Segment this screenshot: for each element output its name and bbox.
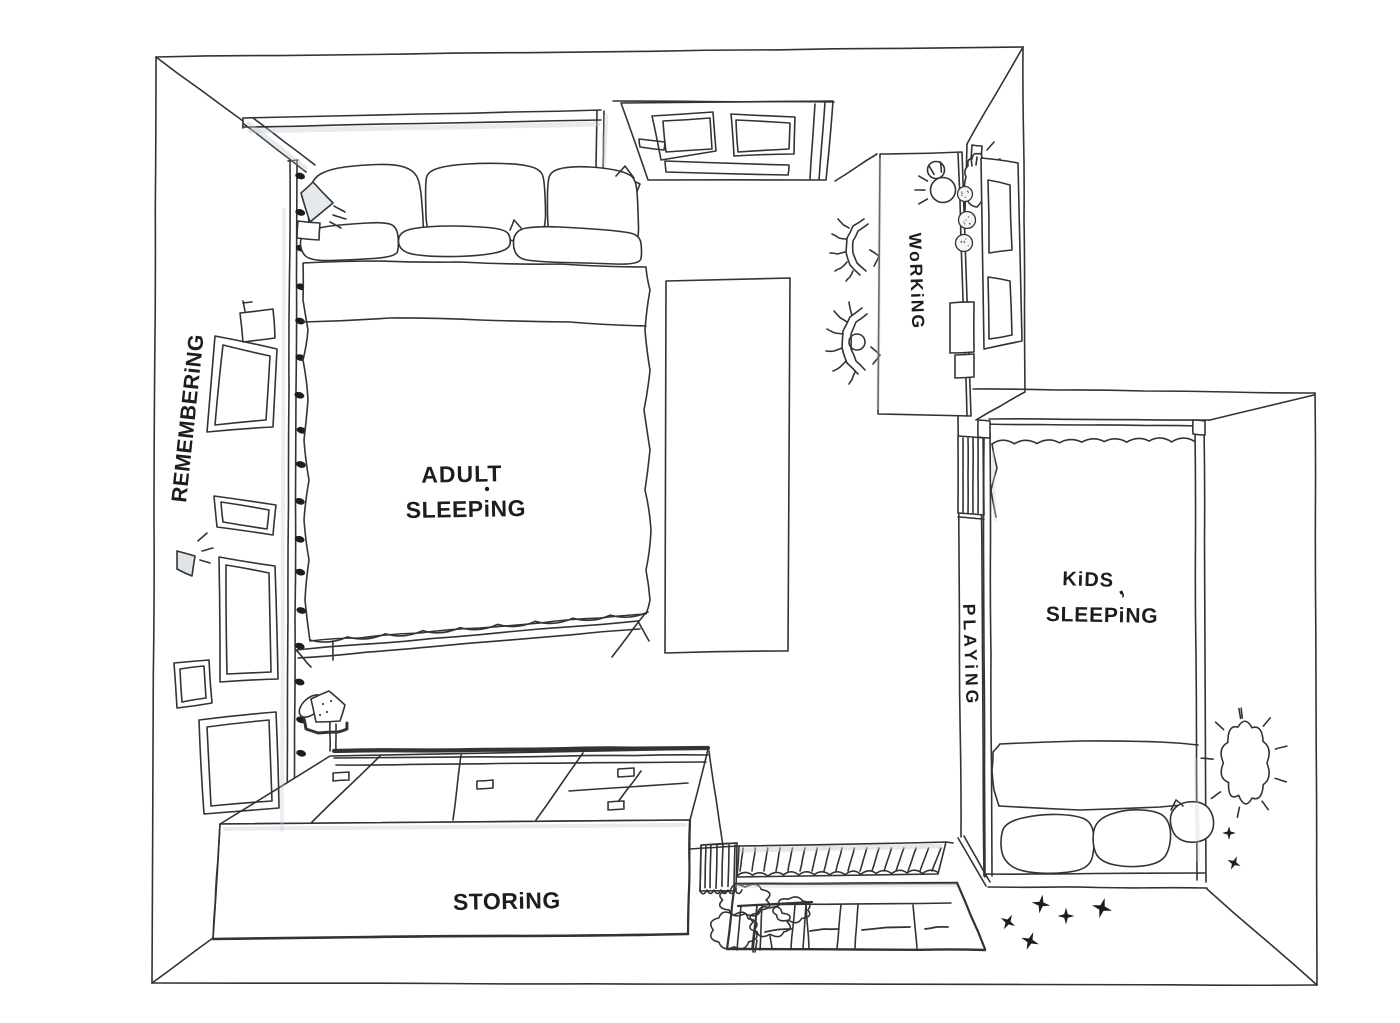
- svg-text:SLEEPiNG: SLEEPiNG: [405, 495, 526, 523]
- svg-text:KiDS: KiDS: [1062, 568, 1115, 592]
- svg-text:WoRKiNG: WoRKiNG: [905, 232, 928, 330]
- svg-text:STORiNG: STORiNG: [453, 887, 561, 915]
- svg-text:SLEEPiNG: SLEEPiNG: [1046, 603, 1159, 628]
- svg-text:PLAYiNG: PLAYiNG: [959, 603, 983, 707]
- svg-text:ADULT: ADULT: [421, 460, 503, 487]
